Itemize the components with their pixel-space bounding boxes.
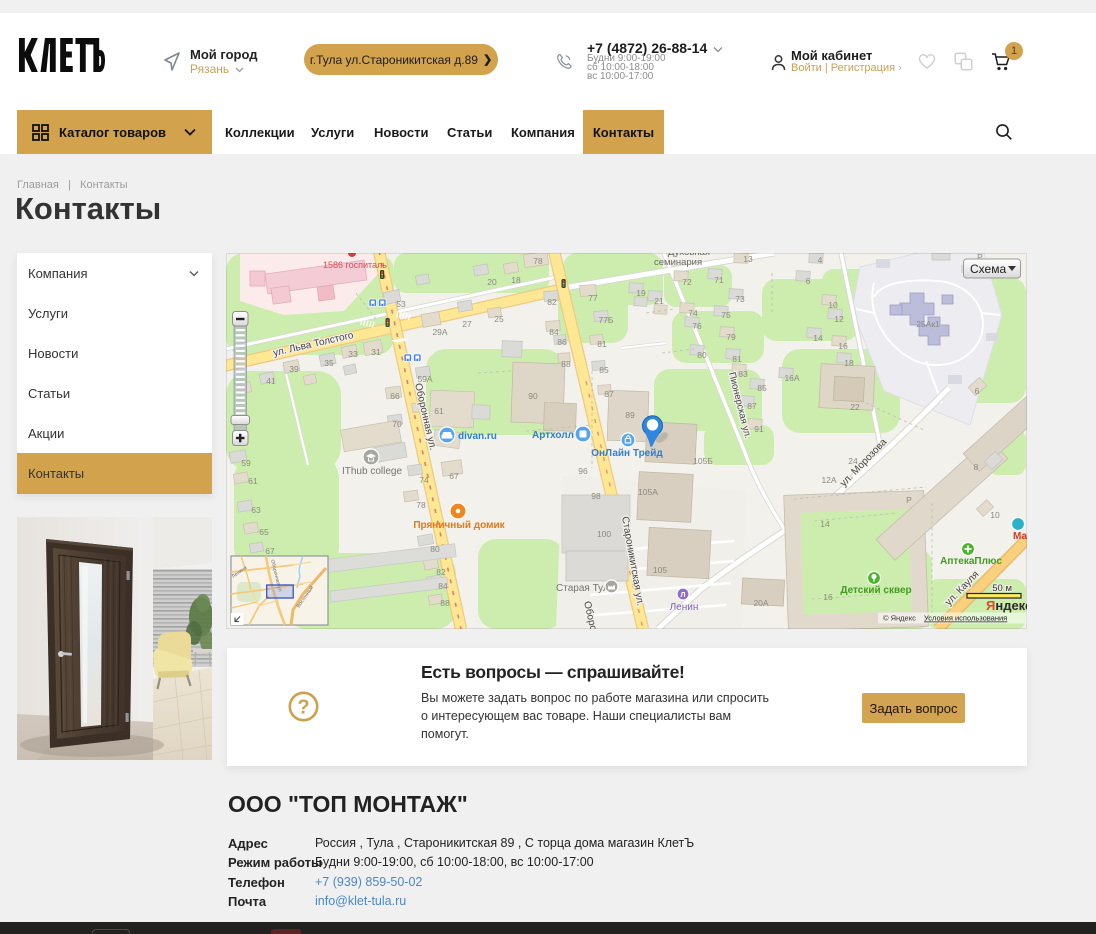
svg-text:77: 77 xyxy=(588,293,598,303)
svg-text:80: 80 xyxy=(697,350,707,360)
svg-text:61: 61 xyxy=(248,476,258,486)
svg-text:АптекаПлюс: АптекаПлюс xyxy=(940,556,1002,567)
svg-text:82: 82 xyxy=(436,567,446,577)
svg-text:84: 84 xyxy=(549,327,559,337)
svg-text:39: 39 xyxy=(289,364,299,374)
svg-text:1586 госпиталь: 1586 госпиталь xyxy=(323,260,387,270)
svg-text:IThub college: IThub college xyxy=(342,466,402,477)
svg-text:80: 80 xyxy=(430,544,440,554)
svg-text:72: 72 xyxy=(682,277,692,287)
svg-text:75: 75 xyxy=(721,310,731,320)
svg-text:74: 74 xyxy=(419,475,429,485)
svg-text:78: 78 xyxy=(416,500,426,510)
svg-text:91: 91 xyxy=(754,424,764,434)
svg-text:90: 90 xyxy=(528,391,538,401)
svg-text:100: 100 xyxy=(597,529,611,539)
svg-text:divan.ru: divan.ru xyxy=(458,431,497,442)
svg-text:29А: 29А xyxy=(432,327,447,337)
svg-text:88: 88 xyxy=(561,359,571,369)
svg-text:27: 27 xyxy=(462,319,472,329)
svg-text:82: 82 xyxy=(547,297,557,307)
svg-text:88: 88 xyxy=(440,598,450,608)
svg-text:12: 12 xyxy=(834,314,844,324)
svg-text:14: 14 xyxy=(820,519,830,529)
svg-text:10: 10 xyxy=(990,510,1000,520)
svg-text:21: 21 xyxy=(654,296,664,306)
svg-text:61: 61 xyxy=(434,406,444,416)
svg-text:© Яндекс: © Яндекс xyxy=(883,614,916,623)
svg-text:87: 87 xyxy=(604,389,614,399)
svg-text:Артхолл: Артхолл xyxy=(532,430,574,441)
svg-text:Яндекс: Яндекс xyxy=(986,598,1027,613)
svg-text:Схема: Схема xyxy=(970,262,1006,276)
svg-text:98: 98 xyxy=(591,491,601,501)
svg-text:19: 19 xyxy=(636,288,646,298)
svg-text:ОнЛайн Трейд: ОнЛайн Трейд xyxy=(591,448,663,459)
svg-text:105: 105 xyxy=(653,565,667,575)
svg-text:25Ак1: 25Ак1 xyxy=(916,319,940,329)
svg-text:16: 16 xyxy=(838,341,848,351)
svg-text:6: 6 xyxy=(806,276,811,286)
svg-text:Пряничный домик: Пряничный домик xyxy=(413,520,505,531)
svg-text:14: 14 xyxy=(813,333,823,343)
svg-text:20А: 20А xyxy=(753,598,768,608)
svg-text:76: 76 xyxy=(692,321,702,331)
svg-text:89: 89 xyxy=(625,410,635,420)
svg-text:86: 86 xyxy=(557,337,567,347)
svg-text:96: 96 xyxy=(578,466,588,476)
svg-text:35: 35 xyxy=(324,358,334,368)
svg-text:59: 59 xyxy=(241,458,251,468)
svg-text:67: 67 xyxy=(265,546,275,556)
svg-text:105А: 105А xyxy=(638,487,658,497)
svg-text:50 м: 50 м xyxy=(992,583,1012,594)
svg-text:33: 33 xyxy=(348,349,358,359)
svg-text:77Б: 77Б xyxy=(598,315,613,325)
svg-text:Ленин: Ленин xyxy=(670,602,699,613)
svg-text:Р: Р xyxy=(906,495,912,505)
svg-text:25: 25 xyxy=(494,314,504,324)
svg-text:22: 22 xyxy=(850,402,860,412)
svg-text:105Б: 105Б xyxy=(693,456,713,466)
svg-text:53: 53 xyxy=(396,299,406,309)
svg-text:66: 66 xyxy=(390,391,400,401)
svg-text:20: 20 xyxy=(487,277,497,287)
svg-text:10: 10 xyxy=(828,300,838,310)
svg-text:семинария: семинария xyxy=(654,257,702,268)
svg-text:74: 74 xyxy=(688,308,698,318)
svg-text:16А: 16А xyxy=(784,373,799,383)
svg-text:85: 85 xyxy=(757,383,767,393)
svg-text:71: 71 xyxy=(714,275,724,285)
svg-text:41: 41 xyxy=(266,376,276,386)
svg-text:81: 81 xyxy=(597,339,607,349)
svg-text:8: 8 xyxy=(974,462,979,472)
svg-text:18: 18 xyxy=(844,358,854,368)
svg-text:73: 73 xyxy=(735,294,745,304)
svg-text:84: 84 xyxy=(438,581,448,591)
svg-text:70: 70 xyxy=(392,419,402,429)
svg-text:65: 65 xyxy=(259,527,269,537)
svg-text:16: 16 xyxy=(823,592,833,602)
svg-text:6: 6 xyxy=(975,386,980,396)
svg-text:31: 31 xyxy=(371,347,381,357)
svg-text:87: 87 xyxy=(747,401,757,411)
svg-text:67: 67 xyxy=(449,471,459,481)
svg-text:18: 18 xyxy=(511,275,521,285)
svg-text:Условия использования: Условия использования xyxy=(924,614,1007,623)
svg-text:?: ? xyxy=(297,697,309,719)
svg-text:79: 79 xyxy=(726,332,736,342)
svg-text:78: 78 xyxy=(533,256,543,266)
svg-text:4: 4 xyxy=(818,255,823,265)
svg-text:63: 63 xyxy=(251,505,261,515)
svg-text:Детский сквер: Детский сквер xyxy=(840,585,911,596)
svg-text:Л: Л xyxy=(681,592,686,599)
svg-text:13: 13 xyxy=(743,254,753,264)
svg-text:12А: 12А xyxy=(821,475,836,485)
svg-text:83: 83 xyxy=(738,369,748,379)
svg-text:81: 81 xyxy=(732,354,742,364)
svg-text:Маг: Маг xyxy=(1013,531,1027,542)
svg-text:85: 85 xyxy=(599,365,609,375)
